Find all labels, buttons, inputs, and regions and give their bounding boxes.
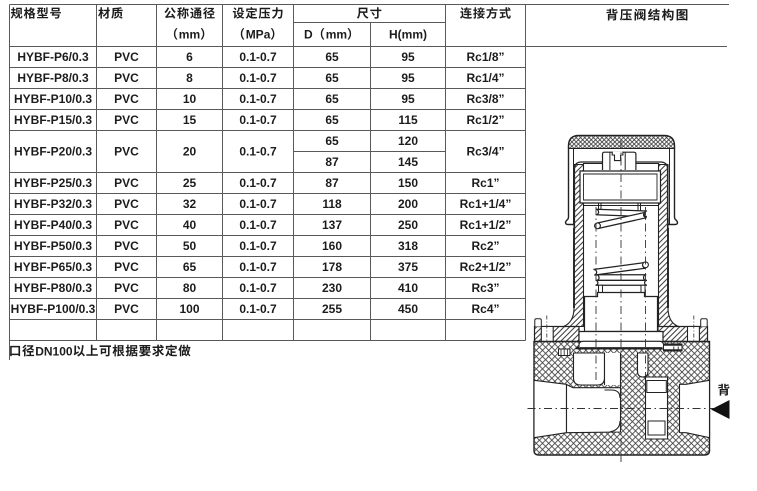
svg-text:Rc3/4”: Rc3/4” [466, 144, 504, 158]
svg-text:Rc1/4”: Rc1/4” [466, 71, 504, 85]
svg-text:120: 120 [398, 134, 418, 148]
svg-text:D: D [304, 28, 313, 42]
svg-text:145: 145 [398, 155, 418, 169]
svg-text:HYBF-P40/0.3: HYBF-P40/0.3 [14, 218, 92, 232]
svg-text:Rc1/8”: Rc1/8” [466, 50, 504, 64]
svg-text:250: 250 [398, 218, 418, 232]
svg-text:95: 95 [401, 92, 415, 106]
svg-text:0.1-0.7: 0.1-0.7 [239, 239, 277, 253]
svg-text:Rc1+1/4”: Rc1+1/4” [460, 197, 512, 211]
svg-text:137: 137 [322, 218, 342, 232]
svg-text:118: 118 [322, 197, 342, 211]
svg-text:115: 115 [398, 113, 418, 127]
svg-text:65: 65 [325, 113, 339, 127]
svg-text:PVC: PVC [114, 197, 139, 211]
svg-text:Rc2”: Rc2” [471, 239, 499, 253]
svg-text:100: 100 [179, 302, 199, 316]
svg-text:65: 65 [325, 71, 339, 85]
svg-text:PVC: PVC [114, 50, 139, 64]
svg-text:10: 10 [183, 92, 197, 106]
svg-text:PVC: PVC [114, 302, 139, 316]
svg-text:87: 87 [325, 155, 339, 169]
svg-text:65: 65 [325, 50, 339, 64]
svg-text:65: 65 [325, 92, 339, 106]
svg-text:mm: mm [179, 28, 200, 42]
svg-text:25: 25 [183, 176, 197, 190]
svg-text:Rc3”: Rc3” [471, 281, 499, 295]
svg-text:450: 450 [398, 302, 418, 316]
svg-text:HYBF-P8/0.3: HYBF-P8/0.3 [17, 71, 89, 85]
svg-text:0.1-0.7: 0.1-0.7 [239, 50, 277, 64]
svg-text:PVC: PVC [114, 218, 139, 232]
svg-text:HYBF-P32/0.3: HYBF-P32/0.3 [14, 197, 92, 211]
svg-text:Rc1”: Rc1” [471, 176, 499, 190]
svg-text:0.1-0.7: 0.1-0.7 [239, 302, 277, 316]
svg-text:PVC: PVC [114, 71, 139, 85]
svg-text:HYBF-P50/0.3: HYBF-P50/0.3 [14, 239, 92, 253]
svg-text:255: 255 [322, 302, 342, 316]
svg-text:15: 15 [183, 113, 197, 127]
svg-text:0.1-0.7: 0.1-0.7 [239, 260, 277, 274]
svg-text:HYBF-P25/0.3: HYBF-P25/0.3 [14, 176, 92, 190]
svg-text:HYBF-P15/0.3: HYBF-P15/0.3 [14, 113, 92, 127]
svg-text:318: 318 [398, 239, 418, 253]
svg-text:0.1-0.7: 0.1-0.7 [239, 113, 277, 127]
svg-text:0.1-0.7: 0.1-0.7 [239, 71, 277, 85]
svg-text:230: 230 [322, 281, 342, 295]
svg-text:MPa: MPa [246, 28, 271, 42]
svg-text:Rc4”: Rc4” [471, 302, 499, 316]
svg-text:65: 65 [183, 260, 197, 274]
svg-text:20: 20 [183, 144, 197, 158]
svg-text:DN100: DN100 [35, 344, 73, 358]
svg-text:410: 410 [398, 281, 418, 295]
svg-text:150: 150 [398, 176, 418, 190]
svg-text:H(mm): H(mm) [389, 28, 427, 42]
svg-text:200: 200 [398, 197, 418, 211]
svg-text:PVC: PVC [114, 113, 139, 127]
svg-text:0.1-0.7: 0.1-0.7 [239, 281, 277, 295]
svg-text:PVC: PVC [114, 281, 139, 295]
svg-text:PVC: PVC [114, 144, 139, 158]
svg-text:0.1-0.7: 0.1-0.7 [239, 197, 277, 211]
svg-text:95: 95 [401, 71, 415, 85]
svg-text:0.1-0.7: 0.1-0.7 [239, 144, 277, 158]
svg-text:HYBF-P80/0.3: HYBF-P80/0.3 [14, 281, 92, 295]
svg-text:PVC: PVC [114, 239, 139, 253]
svg-text:160: 160 [322, 239, 342, 253]
svg-text:PVC: PVC [114, 92, 139, 106]
svg-text:0.1-0.7: 0.1-0.7 [239, 92, 277, 106]
svg-text:HYBF-P20/0.3: HYBF-P20/0.3 [14, 144, 92, 158]
svg-text:178: 178 [322, 260, 342, 274]
svg-text:40: 40 [183, 218, 197, 232]
svg-text:50: 50 [183, 239, 197, 253]
svg-text:8: 8 [186, 71, 193, 85]
svg-text:87: 87 [325, 176, 339, 190]
svg-text:PVC: PVC [114, 260, 139, 274]
svg-text:0.1-0.7: 0.1-0.7 [239, 218, 277, 232]
svg-text:HYBF-P6/0.3: HYBF-P6/0.3 [17, 50, 89, 64]
svg-text:Rc1/2”: Rc1/2” [466, 113, 504, 127]
svg-text:375: 375 [398, 260, 418, 274]
svg-text:HYBF-P65/0.3: HYBF-P65/0.3 [14, 260, 92, 274]
svg-text:mm: mm [326, 28, 347, 42]
svg-text:6: 6 [186, 50, 193, 64]
svg-text:0.1-0.7: 0.1-0.7 [239, 176, 277, 190]
svg-text:95: 95 [401, 50, 415, 64]
svg-text:HYBF-P10/0.3: HYBF-P10/0.3 [14, 92, 92, 106]
svg-text:Rc2+1/2”: Rc2+1/2” [460, 260, 512, 274]
svg-text:PVC: PVC [114, 176, 139, 190]
svg-text:80: 80 [183, 281, 197, 295]
svg-text:Rc3/8”: Rc3/8” [466, 92, 504, 106]
svg-text:Rc1+1/2”: Rc1+1/2” [460, 218, 512, 232]
svg-text:65: 65 [325, 134, 339, 148]
svg-text:HYBF-P100/0.3: HYBF-P100/0.3 [11, 302, 96, 316]
svg-text:32: 32 [183, 197, 197, 211]
